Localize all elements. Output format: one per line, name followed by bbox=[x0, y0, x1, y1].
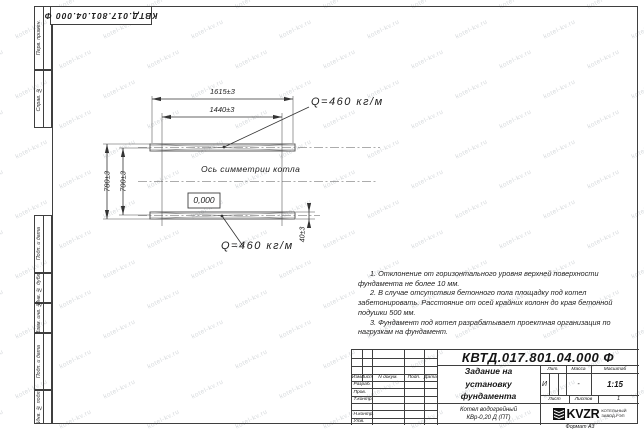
masshtab-label: Масштаб bbox=[591, 365, 639, 373]
masshtab-value: 1:15 bbox=[591, 373, 639, 395]
listov-value: 1 bbox=[598, 395, 639, 403]
doc-number-rotated: КВТД.017.801.04.000 Ф bbox=[44, 11, 158, 21]
lit-value: И bbox=[540, 373, 549, 395]
margin-label: Перв. примен. bbox=[36, 20, 42, 55]
logo-sub-2: ЗАВОД-РЭП bbox=[601, 413, 624, 418]
margin-box-sprav-n: Справ. № bbox=[34, 70, 52, 128]
title-line-1: Задание на bbox=[465, 365, 512, 378]
row-nkontr: Н.контр. bbox=[352, 410, 372, 418]
margin-box-label-col: Взам. инв. № bbox=[35, 304, 44, 332]
doc-number-box: КВТД.017.801.04.000 Ф bbox=[50, 6, 152, 25]
coil-icon bbox=[553, 408, 565, 420]
logo-subtext: КОТЕЛЬНЫЙ ЗАВОД-РЭП bbox=[601, 409, 626, 418]
margin-label: Инв. № подл. bbox=[36, 390, 42, 423]
dim-rail-height: 40±3 bbox=[300, 215, 309, 255]
margin-box-vzam-inv: Взам. инв. № bbox=[34, 303, 52, 333]
listov-label: Листов bbox=[569, 395, 598, 403]
margin-box-label-col: Инв. № дубл. bbox=[35, 274, 44, 302]
col-data: Дата bbox=[424, 374, 437, 381]
margin-label: Инв. № дубл. bbox=[36, 272, 42, 305]
massa-value: - bbox=[566, 373, 591, 395]
row-tkontr: Т.контр. bbox=[352, 396, 372, 403]
title-block: КВТД.017.801.04.000 Ф Изм. Лист N докум.… bbox=[351, 349, 639, 425]
company-logo: KVZR КОТЕЛЬНЫЙ ЗАВОД-РЭП bbox=[540, 403, 639, 425]
dim-length-inner: 1440±3 bbox=[162, 105, 282, 114]
margin-label: Подп. и дата bbox=[36, 345, 42, 378]
lit-label: Лит. bbox=[540, 365, 566, 373]
dim-length-outer: 1615±3 bbox=[152, 87, 293, 96]
margin-box-inv-dubl: Инв. № дубл. bbox=[34, 273, 52, 303]
designation: КВТД.017.801.04.000 Ф bbox=[437, 350, 639, 365]
load-label-top: Q=460 кг/м bbox=[311, 96, 384, 108]
col-ndoc: N докум. bbox=[372, 374, 404, 381]
margin-label: Подп. и дата bbox=[36, 227, 42, 260]
product-line-1: Котел водогрейный bbox=[460, 406, 517, 414]
load-label-bottom: Q=460 кг/м bbox=[221, 240, 294, 252]
margin-box-inv-podl: Инв. № подл. bbox=[34, 390, 52, 424]
product-name: Котел водогрейный КВр-0,20 Д (ПТ) bbox=[437, 403, 540, 425]
list-label: Лист bbox=[540, 395, 569, 403]
title-line-3: фундамента bbox=[461, 390, 517, 403]
margin-label: Взам. инв. № bbox=[36, 301, 42, 334]
format-label: Формат А3 bbox=[540, 424, 620, 430]
margin-label: Справ. № bbox=[36, 87, 42, 111]
margin-box-label-col: Перв. примен. bbox=[35, 7, 44, 69]
drawing-sheet: { "sheet": { "doc_number_top": "КВТД.017… bbox=[0, 0, 644, 430]
product-line-2: КВр-0,20 Д (ПТ) bbox=[466, 414, 510, 422]
title-line-2: установку bbox=[465, 378, 511, 391]
note-3: 3. Фундамент под котел разрабатывает про… bbox=[358, 318, 622, 337]
margin-box-podp-data-1: Подп. и дата bbox=[34, 215, 52, 273]
col-list: Лист bbox=[362, 374, 372, 381]
row-empty bbox=[352, 403, 372, 410]
note-2: 2. В случае отсутствия бетонного пола пл… bbox=[358, 288, 622, 317]
document-title: Задание на установку фундамента bbox=[437, 365, 540, 403]
margin-box-label-col: Подп. и дата bbox=[35, 334, 44, 389]
massa-label: Масса bbox=[566, 365, 591, 373]
margin-box-podp-data-2: Подп. и дата bbox=[34, 333, 52, 390]
row-prov: Пров. bbox=[352, 388, 372, 396]
margin-box-label-col: Инв. № подл. bbox=[35, 391, 44, 423]
note-1: 1. Отклонение от горизонтального уровня … bbox=[358, 269, 622, 288]
notes-block: 1. Отклонение от горизонтального уровня … bbox=[358, 269, 622, 337]
row-utv: Утв. bbox=[352, 418, 372, 425]
centerlines bbox=[138, 148, 380, 216]
col-podp: Подп. bbox=[404, 374, 424, 381]
dim-height-inner: 700±3 bbox=[119, 142, 128, 222]
axis-of-symmetry-label: Ось симметрии котла bbox=[201, 164, 289, 174]
margin-box-label-col: Подп. и дата bbox=[35, 216, 44, 272]
dim-height-outer: 780±3 bbox=[103, 142, 112, 222]
level-mark-value: 0,000 bbox=[188, 195, 220, 205]
row-razrab: Разраб. bbox=[352, 381, 372, 388]
margin-box-label-col: Справ. № bbox=[35, 71, 44, 127]
leader-lines bbox=[222, 107, 309, 246]
logo-text: KVZR bbox=[567, 407, 600, 421]
